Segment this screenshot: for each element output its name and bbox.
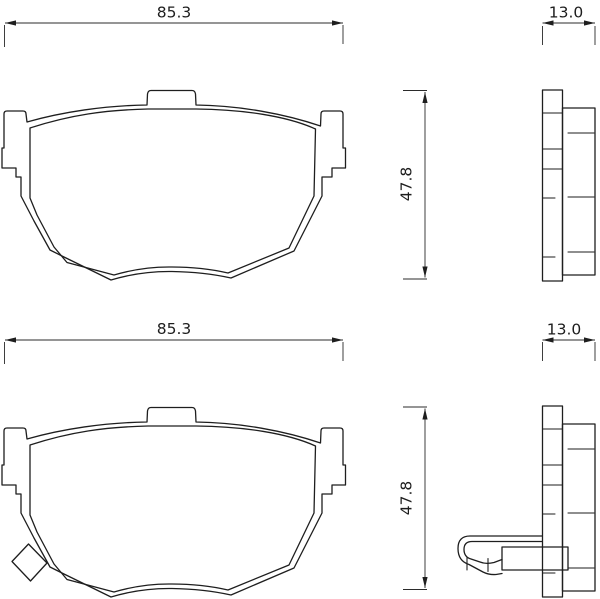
- dim-arrow-left: [5, 20, 16, 25]
- wear-indicator-clip: [458, 536, 568, 575]
- width-dimension-label-top: 85.3: [157, 4, 192, 22]
- thickness-dimension-top: 13.0: [543, 4, 596, 46]
- pad-side-view-bottom: [543, 406, 596, 597]
- width-dimension-top: 85.3: [5, 4, 344, 48]
- pad-front-view-bottom: [2, 408, 346, 598]
- dim-arrow-left: [5, 337, 16, 342]
- height-dimension-label-bottom: 47.8: [398, 481, 416, 516]
- dim-arrow-up: [422, 409, 427, 420]
- dim-arrow-down: [422, 577, 427, 588]
- drawing-top: 85.3 13.0 47.8: [2, 4, 595, 282]
- dim-arrow-right: [332, 337, 343, 342]
- height-dimension-top: 47.8: [398, 91, 428, 280]
- thickness-dimension-label-bottom: 13.0: [547, 321, 582, 339]
- clip-inner-fold: [464, 542, 542, 564]
- height-dimension-bottom: 47.8: [398, 407, 428, 590]
- pad-side-view-top: [543, 90, 596, 281]
- thickness-dimension-bottom: 13.0: [543, 321, 596, 362]
- drawing-bottom: 85.3 13.0 47.8: [2, 320, 595, 597]
- dim-arrow-down: [422, 267, 427, 278]
- dim-arrow-up: [422, 92, 427, 103]
- dim-arrow-right: [584, 337, 595, 342]
- technical-drawing-canvas: 85.3 13.0 47.8: [0, 0, 600, 599]
- thickness-dimension-label-top: 13.0: [549, 4, 584, 22]
- dim-arrow-right: [332, 20, 343, 25]
- wear-indicator-tab: [12, 544, 47, 581]
- dim-arrow-right: [584, 20, 595, 25]
- height-dimension-label-top: 47.8: [398, 167, 416, 202]
- width-dimension-label-bottom: 85.3: [157, 320, 192, 338]
- brake-pad-technical-drawing-page: 85.3 13.0 47.8: [0, 0, 600, 599]
- pad-front-view-top: [2, 91, 346, 281]
- width-dimension-bottom: 85.3: [5, 320, 344, 364]
- clip-mount-block: [502, 547, 568, 570]
